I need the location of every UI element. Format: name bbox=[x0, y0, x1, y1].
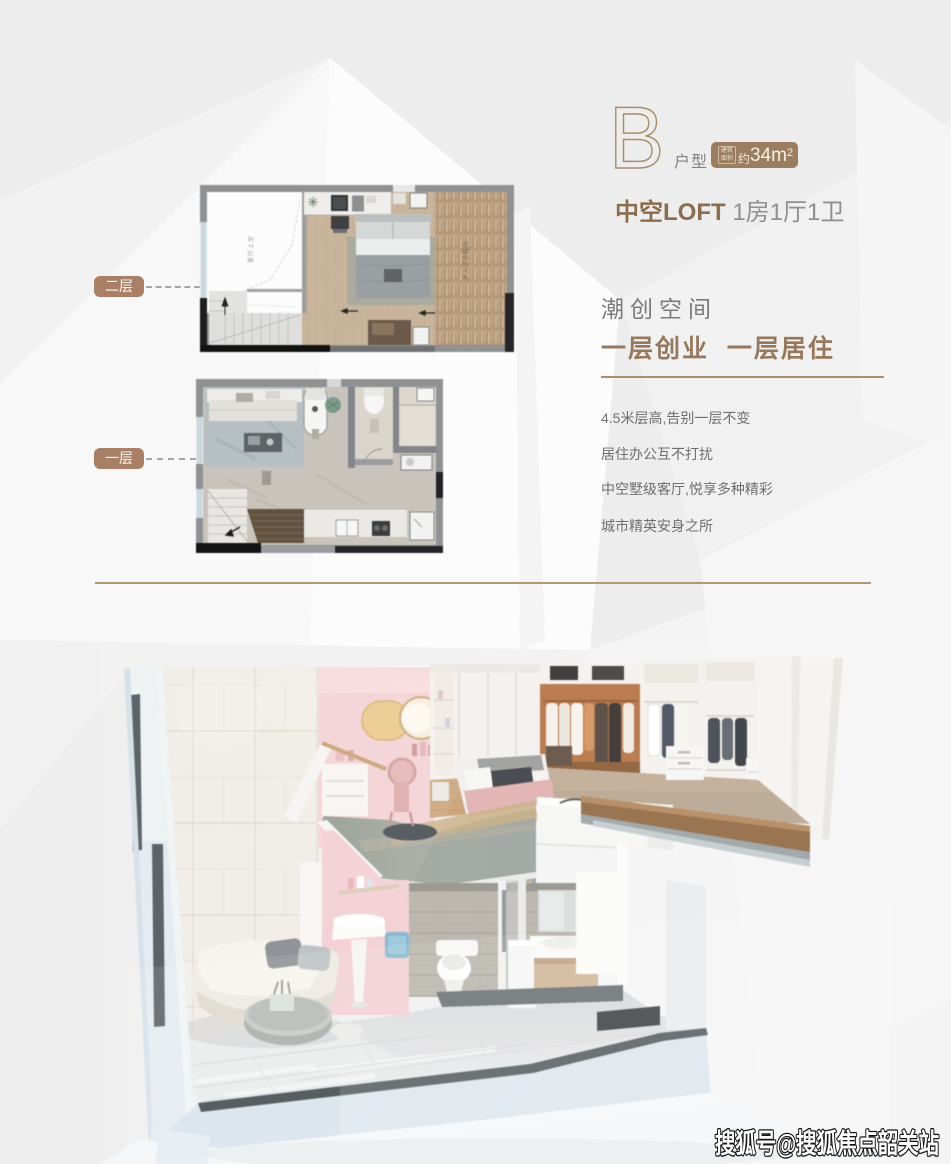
svg-text:B: B bbox=[609, 95, 664, 180]
svg-text:搜狐号@搜狐焦点韶关站: 搜狐号@搜狐焦点韶关站 bbox=[715, 1128, 939, 1159]
svg-text:客厅上空: 客厅上空 bbox=[247, 235, 255, 263]
svg-text:步入式衣帽间: 步入式衣帽间 bbox=[462, 241, 470, 280]
